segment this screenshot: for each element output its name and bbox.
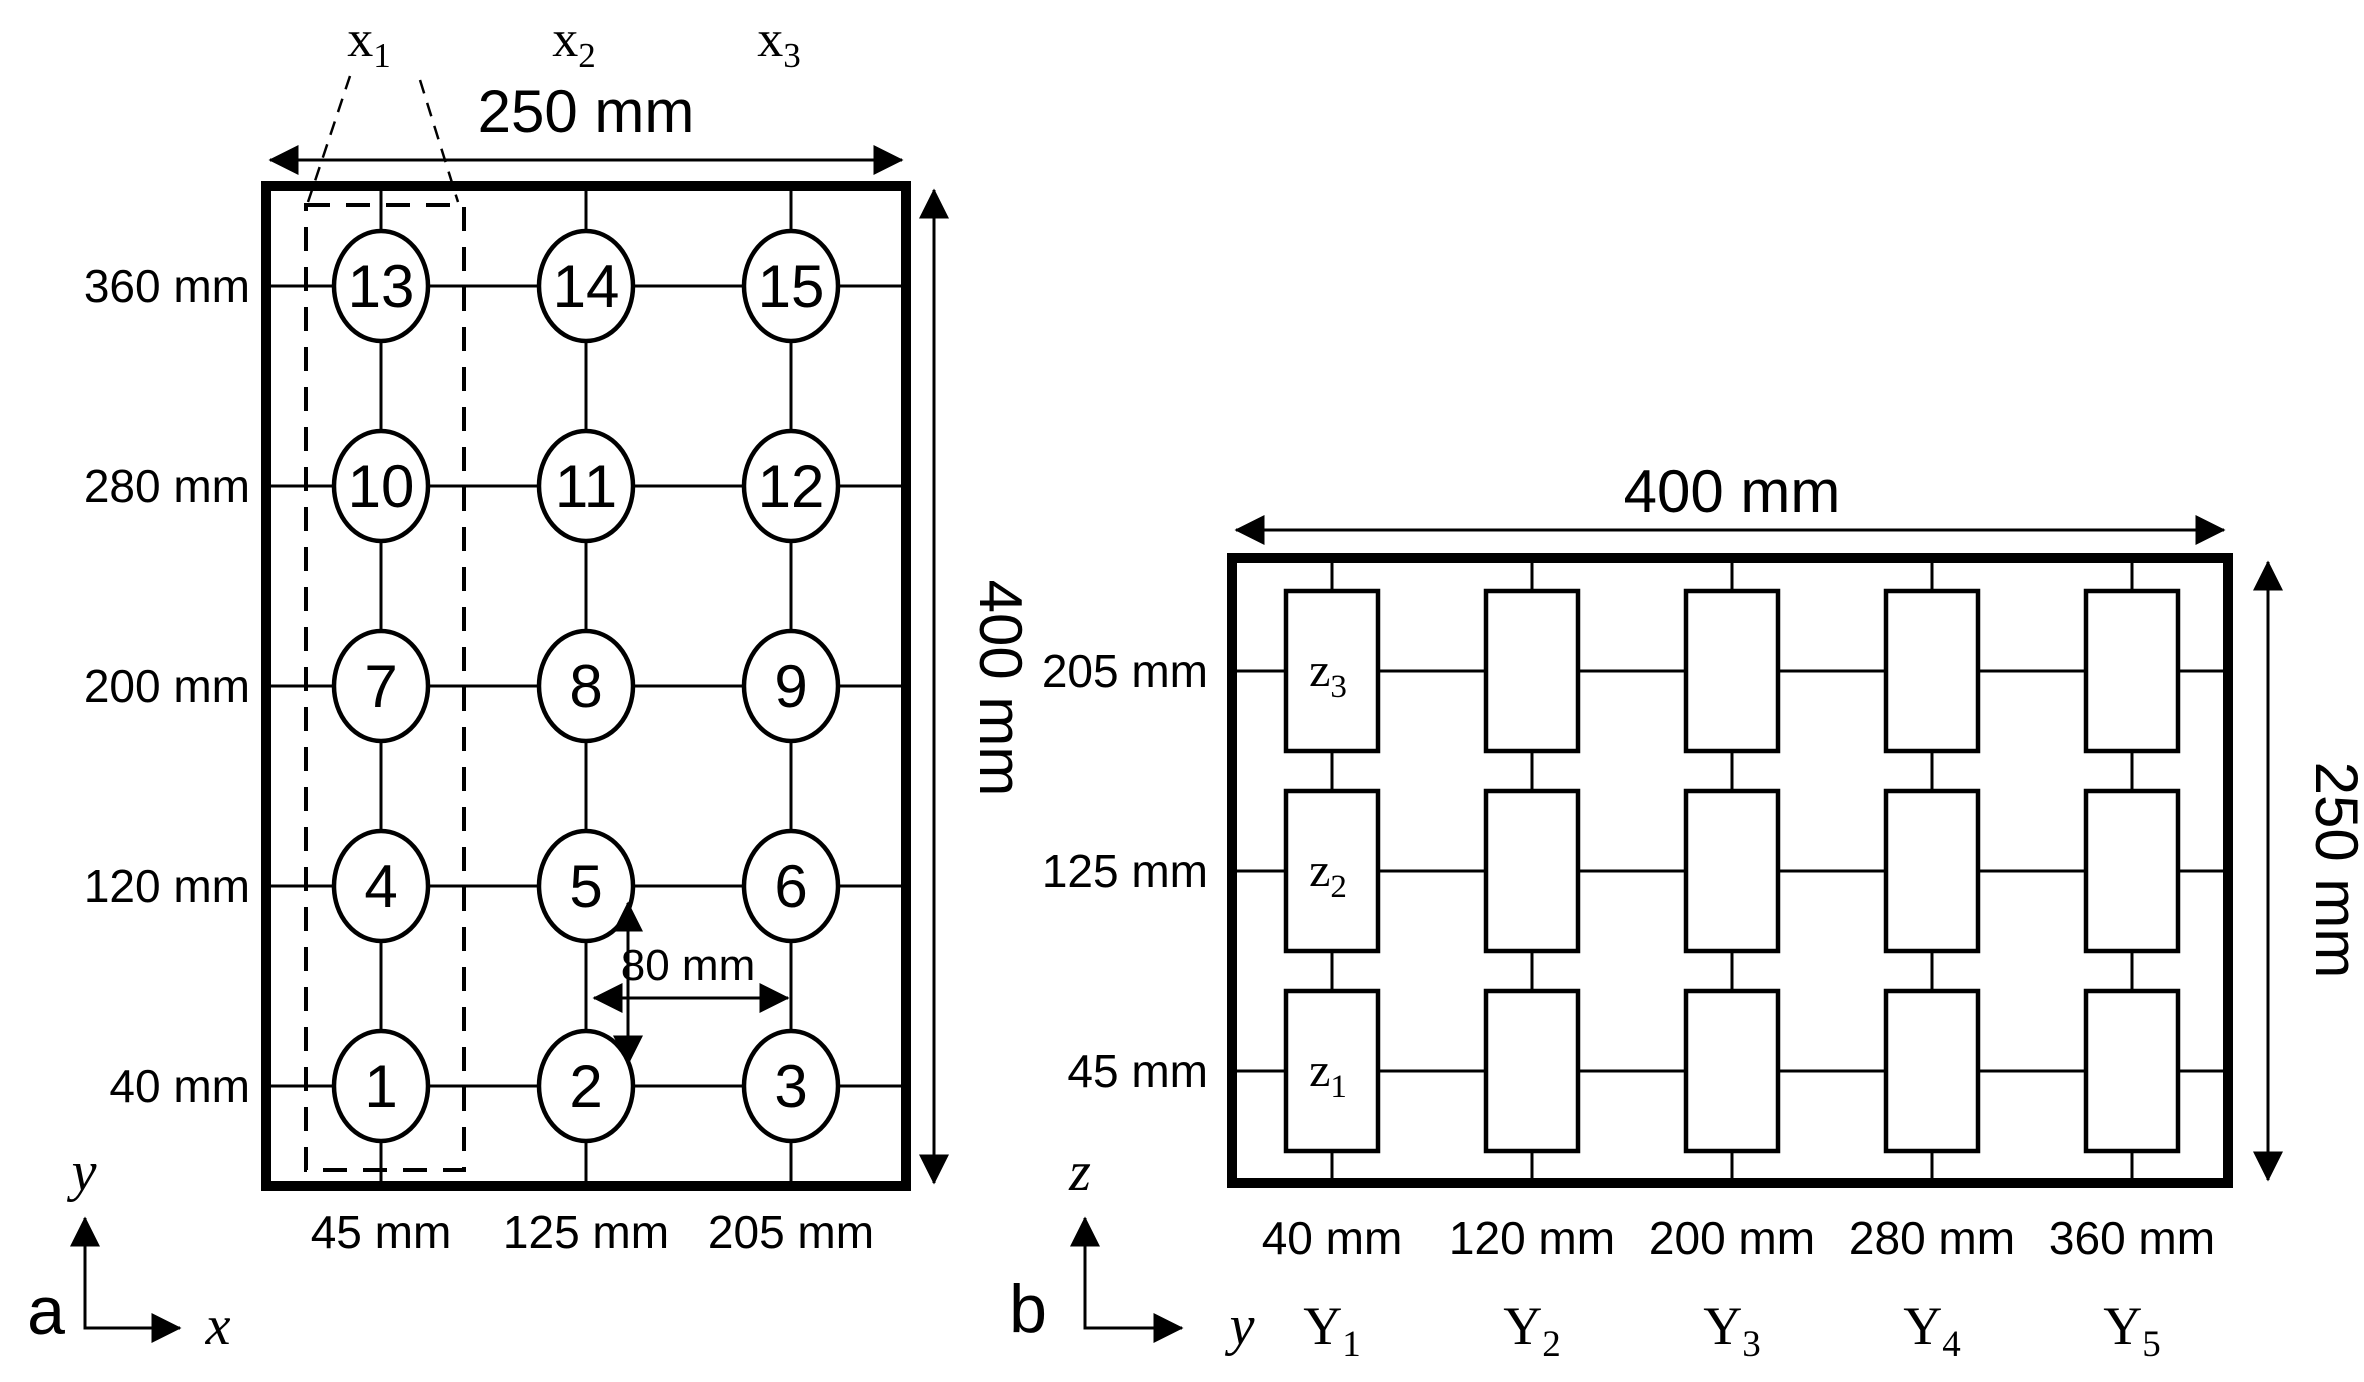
axis-label-y-a: y [67,1141,97,1203]
measurement-point-number: 2 [569,1053,602,1120]
panel-b: z3z2z1 205 mm125 mm45 mm 40 mm120 mm200 … [1009,458,2364,1365]
measurement-point-number: 11 [555,453,617,520]
row-label: 45 mm [1067,1045,1208,1097]
column-footer-Y5: Y5 [2103,1296,2161,1365]
spacing-label: 80 mm [621,941,755,990]
sensor-cell-rect [1486,591,1578,751]
column-headers-a: x1x2x3 [347,11,801,75]
sensor-cell [1486,791,1578,951]
measurement-point-6: 6 [744,831,838,941]
sensor-cell [2086,991,2178,1151]
sensor-cell-rect [1686,791,1778,951]
column-label: 280 mm [1849,1212,2015,1264]
measurement-point-number: 7 [364,653,397,720]
sensor-cell-rect [1886,791,1978,951]
column-label: 205 mm [708,1206,874,1258]
sensor-cell: z2 [1286,791,1378,951]
sensor-cell-rect [2086,591,2178,751]
row-label: 200 mm [84,660,250,712]
measurement-point-1: 1 [334,1031,428,1141]
row-labels-b: 205 mm125 mm45 mm [1042,645,1208,1097]
sensor-cell-rect [1486,791,1578,951]
sensor-cell-rect [1686,591,1778,751]
row-label: 120 mm [84,860,250,912]
row-label: 360 mm [84,260,250,312]
measurement-point-number: 15 [758,253,825,320]
sensor-cell [2086,791,2178,951]
measurement-point-number: 4 [364,853,397,920]
measurement-point-number: 10 [348,453,415,520]
column-labels-b: 40 mm120 mm200 mm280 mm360 mm [1262,1212,2215,1264]
axis-label-x-a: x [205,1295,231,1357]
axes-arrows-a [85,1218,180,1328]
sensor-cell [1686,991,1778,1151]
measurement-point-10: 10 [334,431,428,541]
panel-letter-a: a [27,1273,65,1349]
axes-arrows-b [1085,1218,1182,1328]
figure-canvas: 131415101112789456123 360 mm280 mm200 mm… [0,0,2364,1382]
measurement-point-number: 1 [364,1053,397,1120]
column-footer-Y2: Y2 [1503,1296,1561,1365]
column-label: 125 mm [503,1206,669,1258]
row-labels-a: 360 mm280 mm200 mm120 mm40 mm [84,260,250,1112]
column-footer-Y3: Y3 [1703,1296,1761,1365]
column-label: 200 mm [1649,1212,1815,1264]
column-label: 360 mm [2049,1212,2215,1264]
column-header-x1: x1 [347,11,391,75]
column-header-x3: x3 [757,11,801,75]
measurement-point-8: 8 [539,631,633,741]
axis-label-y-b: y [1225,1295,1255,1357]
measurement-point-number: 3 [774,1053,807,1120]
sensor-cell [1886,591,1978,751]
measurement-point-3: 3 [744,1031,838,1141]
sensor-cell-rect [2086,791,2178,951]
measurement-point-number: 9 [774,653,807,720]
measurement-point-number: 12 [758,453,825,520]
column-labels-a: 45 mm125 mm205 mm [311,1206,874,1258]
measurement-point-14: 14 [539,231,633,341]
dimension-label-width-b: 400 mm [1624,458,1841,525]
sensor-cell-rect [1886,591,1978,751]
row-label: 280 mm [84,460,250,512]
measurement-point-12: 12 [744,431,838,541]
measurement-point-13: 13 [334,231,428,341]
sensor-cell [1886,791,1978,951]
sensor-cell: z3 [1286,591,1378,751]
column-footer-Y4: Y4 [1903,1296,1961,1365]
panel-a: 131415101112789456123 360 mm280 mm200 mm… [27,11,1034,1357]
row-label: 40 mm [109,1060,250,1112]
column-footer-Y1: Y1 [1303,1296,1361,1365]
sensor-cell-rect [1686,991,1778,1151]
column-header-x2: x2 [552,11,596,75]
figure-measurement-grid: 131415101112789456123 360 mm280 mm200 mm… [0,0,2364,1382]
panel-letter-b: b [1009,1271,1047,1347]
sensor-cell [2086,591,2178,751]
sensor-cell [1686,791,1778,951]
dimension-label-height-a: 400 mm [967,580,1034,797]
dimension-label-height-b: 250 mm [2303,762,2364,979]
measurement-point-number: 8 [569,653,602,720]
measurement-point-5: 5 [539,831,633,941]
column-label: 40 mm [1262,1212,1403,1264]
sensor-cell-rect [2086,991,2178,1151]
sensor-cell [1886,991,1978,1151]
sensor-cell [1486,991,1578,1151]
sensor-cell [1686,591,1778,751]
axis-label-z-b: z [1068,1141,1091,1203]
sensor-cell: z1 [1286,991,1378,1151]
measurement-point-number: 5 [569,853,602,920]
measurement-point-2: 2 [539,1031,633,1141]
measurement-point-9: 9 [744,631,838,741]
measurement-point-number: 13 [348,253,415,320]
measurement-point-15: 15 [744,231,838,341]
measurement-point-number: 14 [553,253,620,320]
sensor-cell-rect [1486,991,1578,1151]
row-label: 205 mm [1042,645,1208,697]
sensor-cell [1486,591,1578,751]
dimension-label-width-a: 250 mm [478,78,695,145]
column-label: 120 mm [1449,1212,1615,1264]
measurement-point-4: 4 [334,831,428,941]
row-label: 125 mm [1042,845,1208,897]
sensor-cell-rect [1886,991,1978,1151]
column-label: 45 mm [311,1206,452,1258]
column-footers-b: Y1Y2Y3Y4Y5 [1303,1296,2161,1365]
measurement-point-7: 7 [334,631,428,741]
measurement-point-number: 6 [774,853,807,920]
measurement-point-11: 11 [539,431,633,541]
